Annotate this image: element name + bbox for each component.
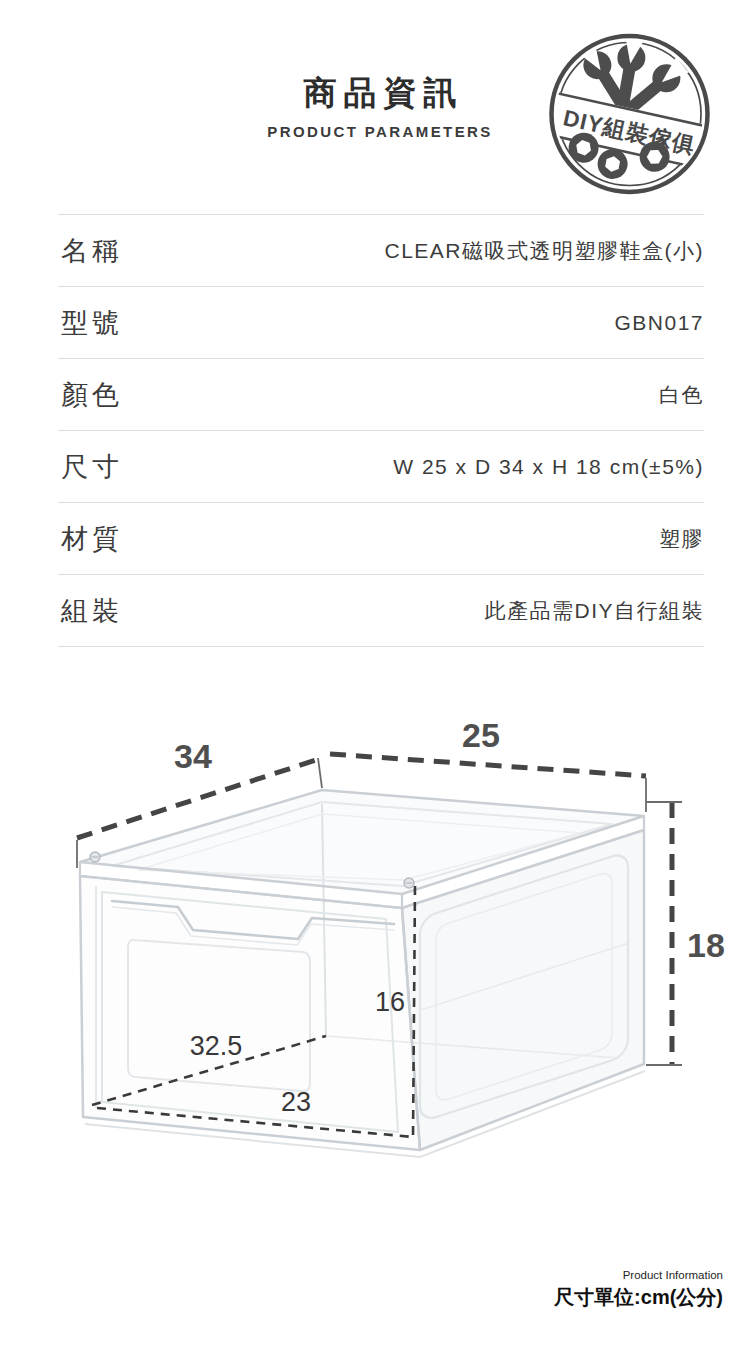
footer-unit-label: 尺寸單位:cm(公分) [554,1285,723,1309]
dim-inner-height-label: 16 [375,987,405,1017]
spec-label: 組裝 [58,593,123,629]
footer: Product Information 尺寸單位:cm(公分) [554,1269,723,1309]
spec-value: 塑膠 [659,525,704,553]
spec-row-material: 材質 塑膠 [58,503,704,575]
spec-row-name: 名稱 CLEAR磁吸式透明塑膠鞋盒(小) [58,215,704,287]
spec-value: GBN017 [614,311,704,335]
diy-assembly-badge-icon: DIY組裝傢俱 [546,31,713,198]
shoebox-wireframe [80,790,645,1157]
spec-label: 顏色 [58,377,123,413]
product-info-page: 商品資訊 PRODUCT PARAMETERS [0,0,750,1350]
spec-value: 白色 [659,381,704,409]
dim-width-label: 25 [462,716,500,754]
spec-label: 名稱 [58,233,123,269]
spec-value: 此產品需DIY自行組裝 [484,597,704,625]
spec-row-model: 型號 GBN017 [58,287,704,359]
dim-depth-label: 34 [174,737,212,775]
spec-table: 名稱 CLEAR磁吸式透明塑膠鞋盒(小) 型號 GBN017 顏色 白色 尺寸 … [58,214,704,647]
page-subtitle: PRODUCT PARAMETERS [230,124,530,139]
screw-icon [404,878,414,888]
page-title: 商品資訊 [230,76,530,109]
spec-label: 尺寸 [58,449,123,485]
footer-en-label: Product Information [554,1269,723,1283]
spec-value: W 25 x D 34 x H 18 cm(±5%) [393,455,704,479]
shoebox-dimension-diagram: 34 25 18 16 32.5 23 [0,690,750,1210]
spec-row-assembly: 組裝 此產品需DIY自行組裝 [58,575,704,647]
spec-label: 材質 [58,521,123,557]
screw-icon [90,852,100,862]
dim-inner-width-label: 23 [281,1087,311,1117]
dim-height-label: 18 [687,926,725,964]
spec-value: CLEAR磁吸式透明塑膠鞋盒(小) [384,237,704,265]
spec-row-size: 尺寸 W 25 x D 34 x H 18 cm(±5%) [58,431,704,503]
spec-row-color: 顏色 白色 [58,359,704,431]
header: 商品資訊 PRODUCT PARAMETERS [230,76,530,139]
dim-inner-depth-label: 32.5 [190,1031,243,1061]
spec-label: 型號 [58,305,123,341]
